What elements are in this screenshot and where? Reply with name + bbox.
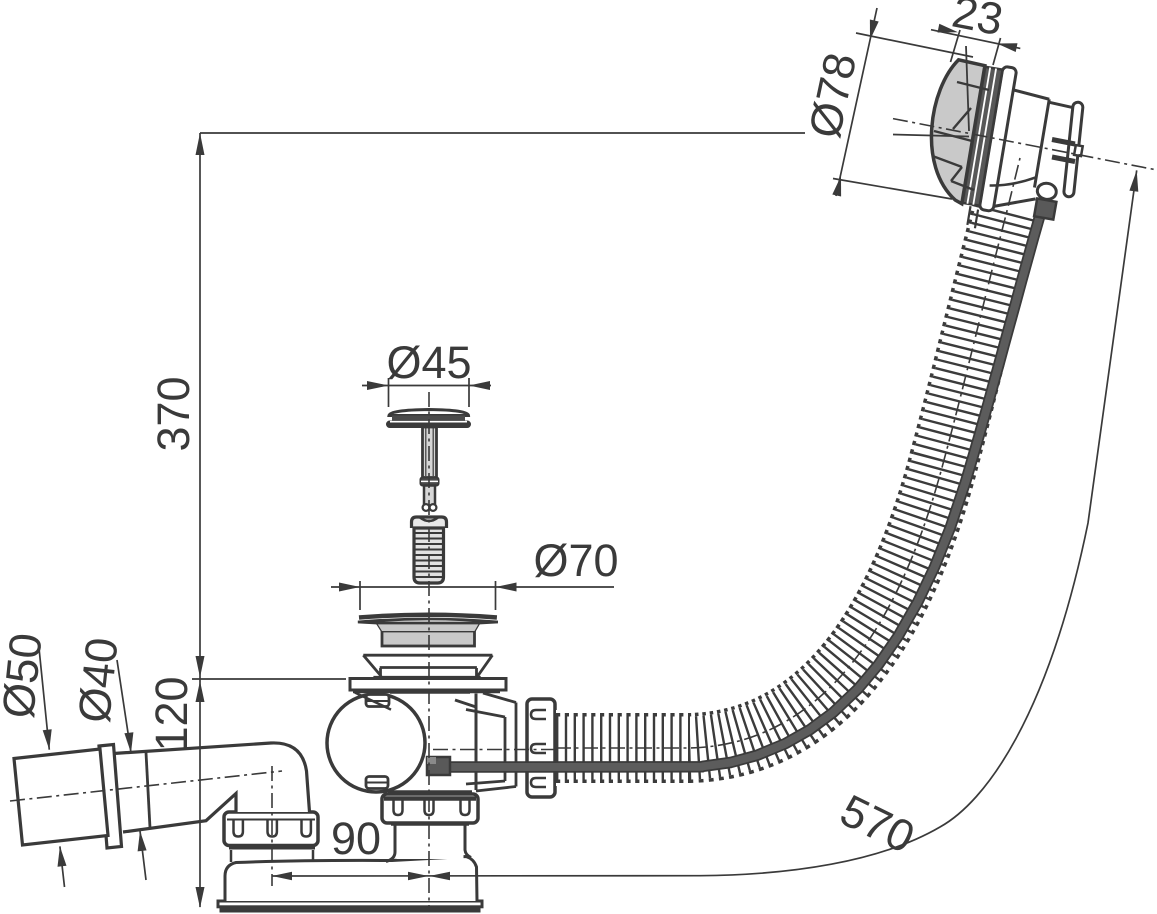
svg-text:Ø45: Ø45 — [386, 337, 471, 388]
svg-text:Ø40: Ø40 — [68, 635, 128, 725]
svg-text:Ø70: Ø70 — [533, 535, 618, 586]
svg-text:120: 120 — [146, 676, 197, 751]
svg-text:90: 90 — [331, 813, 381, 864]
svg-text:Ø50: Ø50 — [0, 631, 52, 721]
svg-text:370: 370 — [148, 376, 199, 451]
